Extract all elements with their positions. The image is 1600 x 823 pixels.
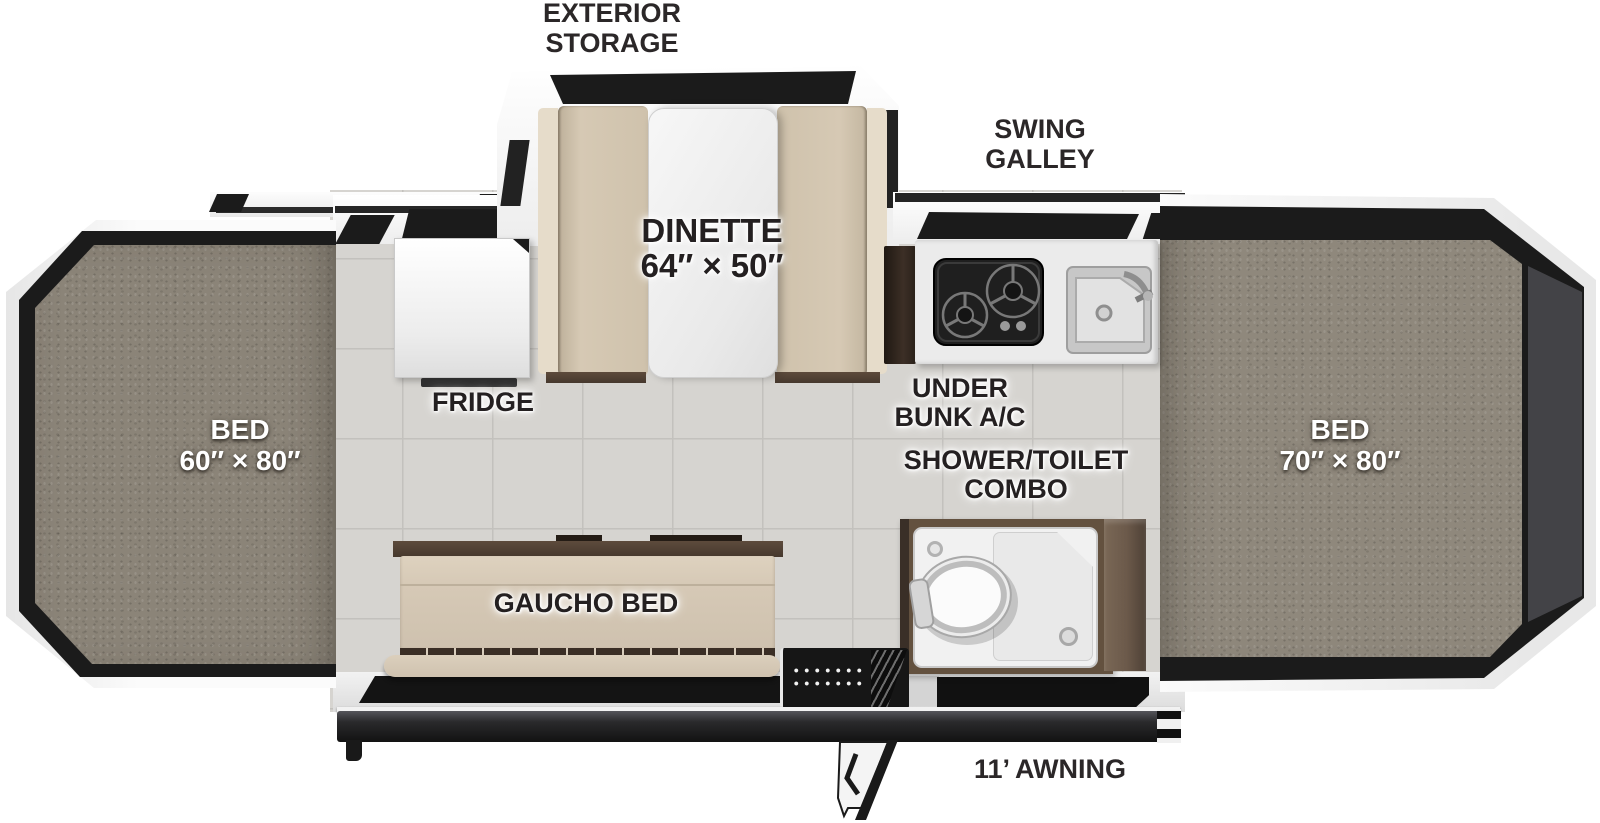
shower-toilet-label: SHOWER/TOILET COMBO: [904, 446, 1129, 504]
bracket-stripe: [1157, 711, 1181, 719]
swing-galley-line2: GALLEY: [985, 144, 1095, 174]
bed-left-label: BED 60″ × 80″: [179, 414, 300, 476]
step-tread-dots: [791, 664, 867, 692]
awning-label: 11’ AWNING: [974, 754, 1126, 784]
wall-panel: [335, 215, 394, 244]
step-hatch: [871, 650, 907, 708]
awning-bracket-left: [346, 740, 362, 761]
swing-galley-label: SWING GALLEY: [985, 114, 1095, 174]
wall-panel: [917, 212, 1139, 239]
dinette-bench-left-back: [538, 108, 558, 374]
bed-left-label-line1: BED: [179, 414, 300, 445]
under-bunk-ac-line2: BUNK A/C: [895, 403, 1026, 432]
bottom-wall-panel-right: [937, 677, 1149, 710]
gaucho-front-roll: [384, 655, 780, 677]
dinette-bench-left-cushion: [558, 106, 648, 376]
fridge-base-shadow: [421, 378, 517, 387]
bed-right-label-line1: BED: [1279, 414, 1400, 445]
cooktop-knob: [1016, 321, 1026, 331]
shower-drain: [1059, 627, 1078, 646]
bath-cabinet: [1104, 519, 1146, 671]
shower-toilet-line1: SHOWER/TOILET: [904, 446, 1129, 475]
dinette-label-line1: DINETTE: [641, 213, 784, 248]
bed-right-foldout: BED 70″ × 80″: [1160, 192, 1596, 694]
fridge-label: FRIDGE: [432, 388, 534, 417]
bed-left-label-line2: 60″ × 80″: [179, 445, 300, 476]
bed-right-end-panel: [1528, 248, 1582, 640]
dinette-bench-left-base: [546, 372, 646, 383]
awning-roller: [337, 711, 1180, 742]
sink-icon: [1066, 266, 1156, 356]
bracket-stripe: [1157, 729, 1181, 738]
bed-right-label: BED 70″ × 80″: [1279, 414, 1400, 476]
fridge: [394, 238, 530, 378]
under-bunk-ac-unit: [884, 246, 916, 364]
gaucho-headrail: [393, 541, 783, 557]
cooktop-knob: [1000, 321, 1010, 331]
galley-counter: [915, 240, 1158, 364]
gaucho-label: GAUCHO BED: [494, 589, 679, 618]
under-bunk-ac-label: UNDER BUNK A/C: [895, 374, 1026, 432]
cooktop-icon: [933, 258, 1044, 346]
exterior-storage-line2: STORAGE: [543, 28, 681, 58]
awning-bracket-right: [1157, 709, 1181, 743]
floorplan-canvas: BED 60″ × 80″ BED 70″ × 80″ FRIDGE DINET…: [0, 0, 1600, 823]
wall-band-galley: [893, 192, 1185, 244]
exterior-storage-label: EXTERIOR STORAGE: [543, 0, 681, 58]
shower-toilet-combo: [900, 519, 1113, 674]
swing-galley-line1: SWING: [985, 114, 1095, 144]
toilet-icon: [909, 547, 1023, 653]
dinette-bench-right-cushion: [777, 106, 867, 376]
exterior-storage-line1: EXTERIOR: [543, 0, 681, 28]
door-step-icon: [818, 738, 918, 822]
gaucho-seam: [400, 584, 775, 586]
bed-right-label-line2: 70″ × 80″: [1279, 445, 1400, 476]
gaucho-bed: GAUCHO BED: [380, 530, 790, 680]
wall-band-storage: [333, 195, 507, 244]
dinette-label-line2: 64″ × 50″: [641, 248, 784, 283]
shower-toilet-line2: COMBO: [904, 475, 1129, 504]
dinette-bench-right-base: [775, 372, 880, 383]
bottom-wall-panel-left: [359, 676, 783, 703]
dinette-label: DINETTE 64″ × 50″: [641, 213, 784, 283]
entry-step: [780, 648, 909, 710]
sink-drain: [1097, 306, 1111, 320]
fridge-corner-notch: [513, 239, 529, 253]
wall-stripe: [895, 193, 1185, 202]
under-bunk-ac-line1: UNDER: [895, 374, 1026, 403]
bed-left-foldout: BED 60″ × 80″: [6, 218, 336, 690]
